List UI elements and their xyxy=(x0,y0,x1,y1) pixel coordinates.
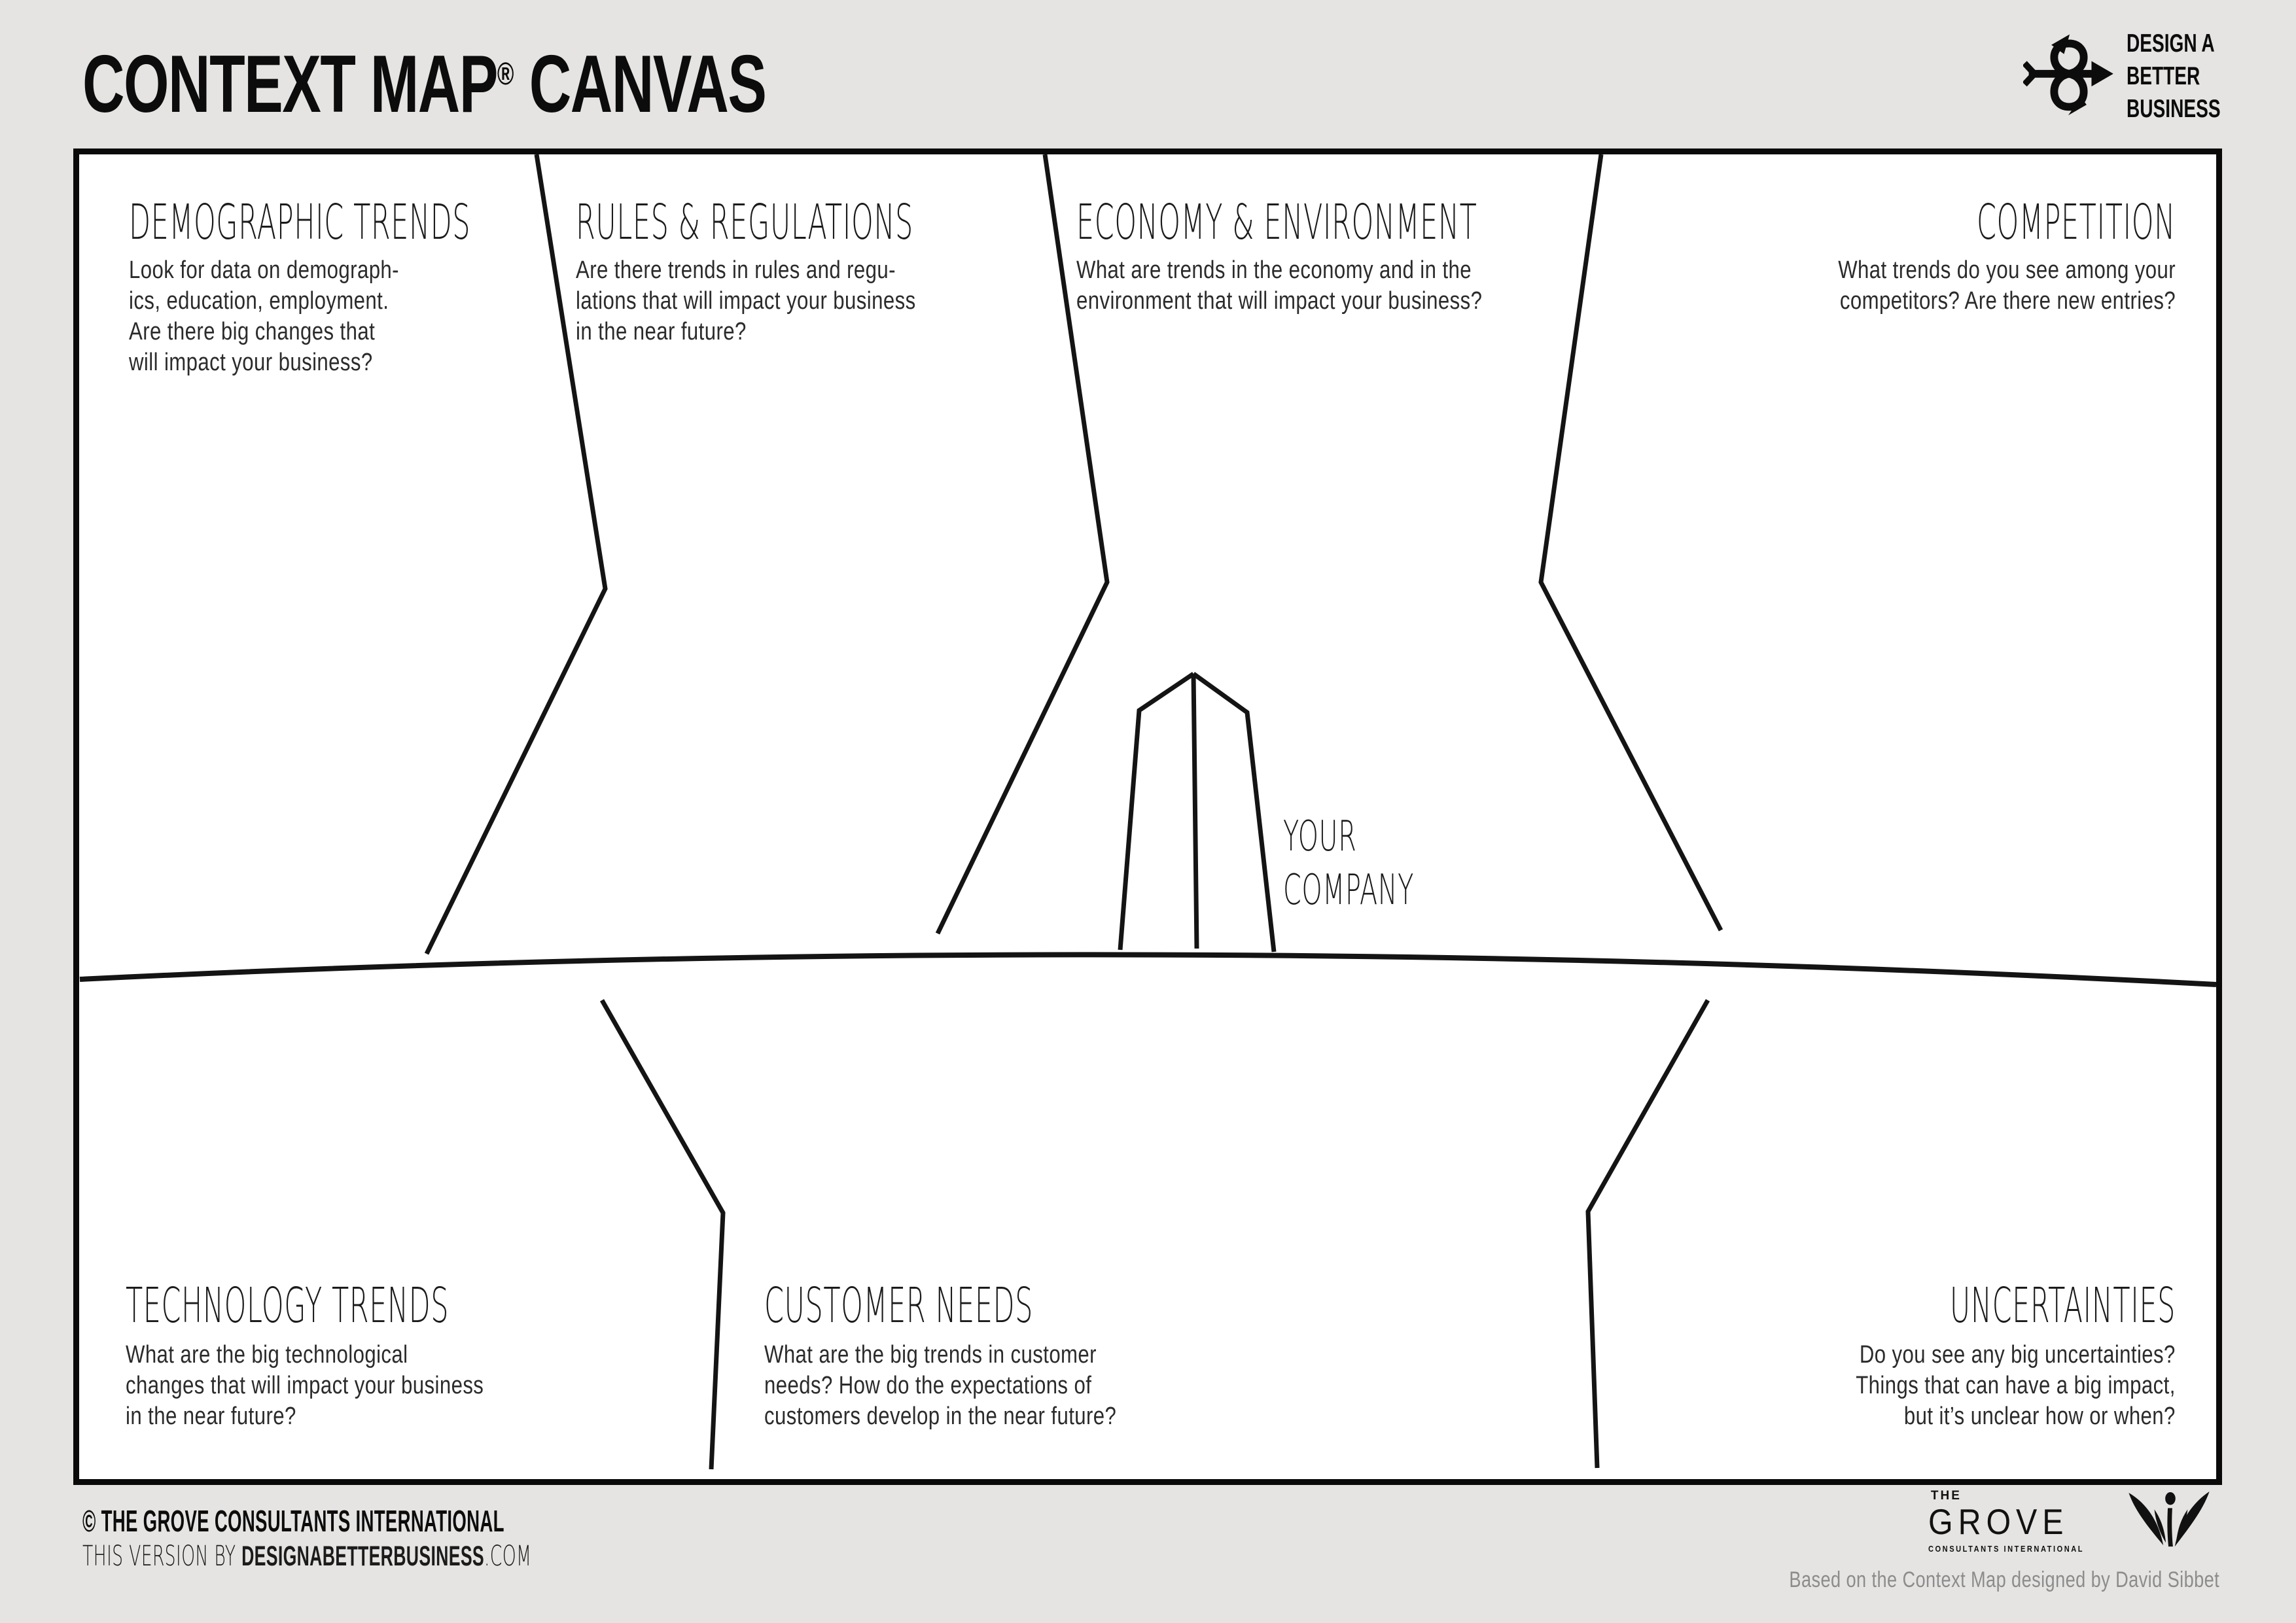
registered-trademark-symbol: ® xyxy=(497,57,514,92)
section-body-demographic-trends: Look for data on demograph- ics, educati… xyxy=(129,255,399,378)
section-title-demographic-trends: DEMOGRAPHIC TRENDS xyxy=(129,198,470,247)
section-title-uncertainties: UNCERTAINTIES xyxy=(1950,1281,2176,1331)
brand-line-2: BETTER xyxy=(2127,60,2221,93)
footer-version-suffix: .COM xyxy=(484,1540,531,1573)
grove-wordmark: THE GROVE CONSULTANTS INTERNATIONAL xyxy=(1928,1489,2111,1554)
brand-line-1: DESIGN A xyxy=(2127,27,2221,60)
footer-copyright: © THE GROVE CONSULTANTS INTERNATIONAL xyxy=(82,1503,504,1539)
context-map-canvas-page: CONTEXT MAP® CANVAS DESIGN A BETTER BUSI… xyxy=(0,0,2296,1623)
footer-version-prefix: THIS VERSION BY xyxy=(82,1540,241,1573)
your-company-label: YOUR COMPANY xyxy=(1283,810,1414,917)
grove-name: GROVE xyxy=(1928,1503,2089,1540)
section-title-competition: COMPETITION xyxy=(1977,198,2176,247)
grove-logo: THE GROVE CONSULTANTS INTERNATIONAL xyxy=(1928,1489,2211,1554)
section-body-rules-regulations: Are there trends in rules and regu- lati… xyxy=(576,255,916,347)
section-title-rules-regulations: RULES & REGULATIONS xyxy=(576,198,913,247)
page-title-tail: CANVAS xyxy=(514,39,766,130)
infinity-arrows-icon xyxy=(2023,26,2115,126)
section-body-uncertainties: Do you see any big uncertainties? Things… xyxy=(1856,1340,2176,1432)
footer-version-brand: DESIGNABETTERBUSINESS xyxy=(241,1541,484,1572)
brand-line-3: BUSINESS xyxy=(2127,93,2221,126)
section-title-customer-needs: CUSTOMER NEEDS xyxy=(764,1281,1033,1331)
page-title-main: CONTEXT MAP xyxy=(82,39,497,130)
footer-version: THIS VERSION BY DESIGNABETTERBUSINESS.CO… xyxy=(82,1540,531,1573)
grove-tagline: CONSULTANTS INTERNATIONAL xyxy=(1928,1544,2084,1554)
section-title-technology-trends: TECHNOLOGY TRENDS xyxy=(126,1281,449,1331)
brand-wordmark: DESIGN A BETTER BUSINESS xyxy=(2127,27,2221,126)
design-a-better-business-logo: DESIGN A BETTER BUSINESS xyxy=(2023,26,2115,126)
section-body-technology-trends: What are the big technological changes t… xyxy=(126,1340,484,1432)
credit-note: Based on the Context Map designed by Dav… xyxy=(1789,1567,2219,1593)
page-title: CONTEXT MAP® CANVAS xyxy=(82,38,766,131)
section-body-competition: What trends do you see among your compet… xyxy=(1838,255,2176,317)
section-body-customer-needs: What are the big trends in customer need… xyxy=(764,1340,1116,1432)
section-title-economy-environment: ECONOMY & ENVIRONMENT xyxy=(1076,198,1477,247)
section-body-economy-environment: What are trends in the economy and in th… xyxy=(1076,255,1482,317)
grove-leaves-icon xyxy=(2127,1492,2211,1549)
